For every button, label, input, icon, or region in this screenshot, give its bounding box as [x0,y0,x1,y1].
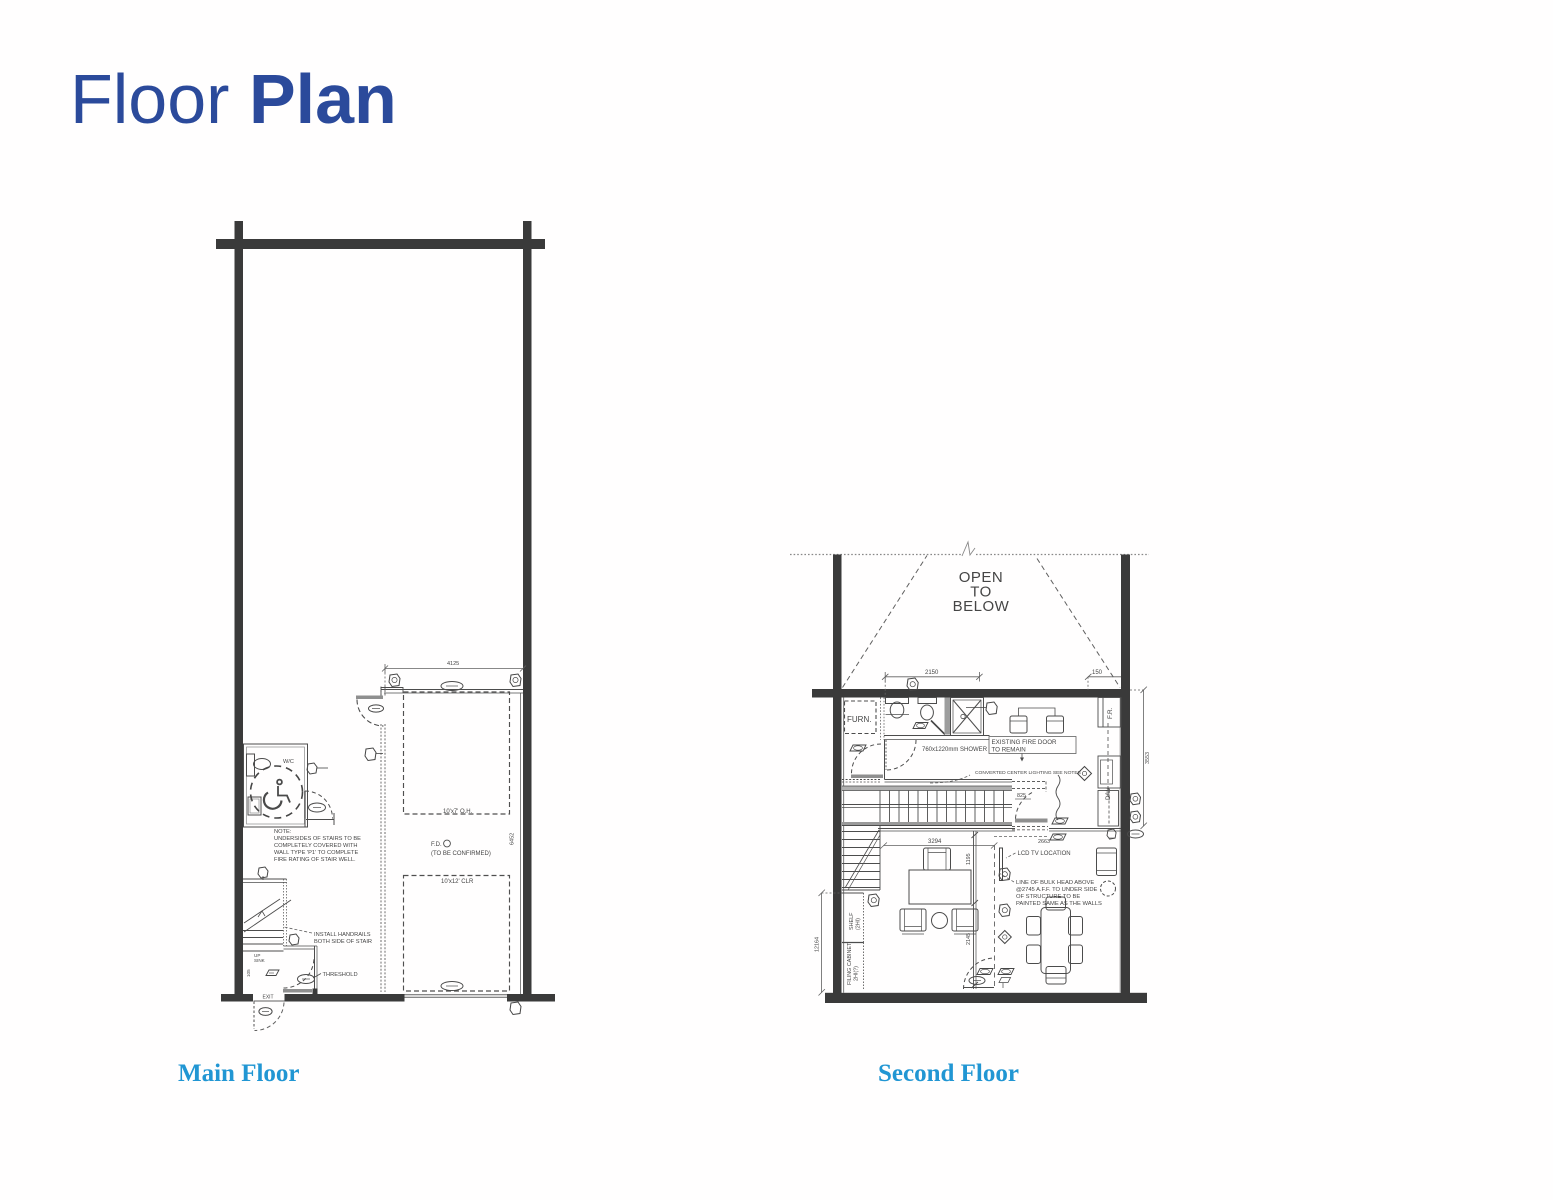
svg-text:FIRE RATING OF STAIR WELL.: FIRE RATING OF STAIR WELL. [274,857,356,863]
svg-text:825: 825 [1017,793,1026,799]
svg-text:SHELF: SHELF [849,912,855,930]
svg-text:NOTE:: NOTE: [274,829,292,835]
svg-text:THRESHOLD: THRESHOLD [323,972,358,978]
svg-text:2145: 2145 [966,933,972,945]
svg-text:2150: 2150 [925,670,939,676]
svg-text:INSTALL HANDRAILS: INSTALL HANDRAILS [314,932,371,938]
svg-text:SINK: SINK [254,958,266,963]
svg-text:1195: 1195 [966,853,972,865]
svg-text:W/C: W/C [283,759,294,765]
svg-text:WALL TYPE 'P1' TO COMPLETE: WALL TYPE 'P1' TO COMPLETE [274,850,358,856]
svg-text:6452: 6452 [510,833,516,845]
svg-text:BELOW: BELOW [953,598,1010,615]
svg-text:@2745 A.F.F. TO UNDER SIDE: @2745 A.F.F. TO UNDER SIDE [1016,887,1098,893]
svg-text:UNDERSIDES OF STAIRS TO BE: UNDERSIDES OF STAIRS TO BE [274,836,361,842]
svg-text:10'x12' CLR: 10'x12' CLR [441,879,474,885]
svg-text:150: 150 [1092,670,1103,676]
svg-text:EXIT: EXIT [263,995,274,1001]
svg-text:FURN.: FURN. [847,715,871,724]
svg-text:2663: 2663 [1038,839,1050,845]
svg-text:PAINTED SAME AS THE WALLS: PAINTED SAME AS THE WALLS [1016,901,1102,907]
svg-text:EXISTING FIRE DOOR: EXISTING FIRE DOOR [992,739,1058,746]
svg-text:LCD TV LOCATION: LCD TV LOCATION [1018,851,1071,857]
svg-text:COMPLETELY COVERED WITH: COMPLETELY COVERED WITH [274,843,358,849]
svg-text:105: 105 [246,969,251,977]
svg-text:760x1220mm SHOWER: 760x1220mm SHOWER [922,747,988,753]
svg-text:(2HI): (2HI) [856,918,862,930]
svg-text:D/W: D/W [1105,787,1112,800]
svg-text:3553: 3553 [1145,752,1151,764]
svg-text:F.R.: F.R. [1107,707,1114,719]
svg-text:LINE OF BULK HEAD ABOVE: LINE OF BULK HEAD ABOVE [1016,880,1094,886]
svg-text:F.D.: F.D. [431,842,442,848]
svg-text:FILING CABINET: FILING CABINET [847,942,853,985]
svg-text:10'x7' O.H.: 10'x7' O.H. [443,809,473,815]
svg-text:BOTH SIDE OF STAIR: BOTH SIDE OF STAIR [314,939,372,945]
svg-text:12164: 12164 [815,937,821,952]
svg-text:CONVERTED CENTER LIGHTING SEE: CONVERTED CENTER LIGHTING SEE NOTES [975,770,1082,776]
svg-text:(TO BE CONFIRMED): (TO BE CONFIRMED) [431,851,491,857]
svg-text:4125: 4125 [447,661,459,667]
svg-text:2HI(?): 2HI(?) [854,966,860,981]
svg-text:3294: 3294 [928,839,942,845]
svg-text:TO REMAIN: TO REMAIN [992,747,1026,754]
